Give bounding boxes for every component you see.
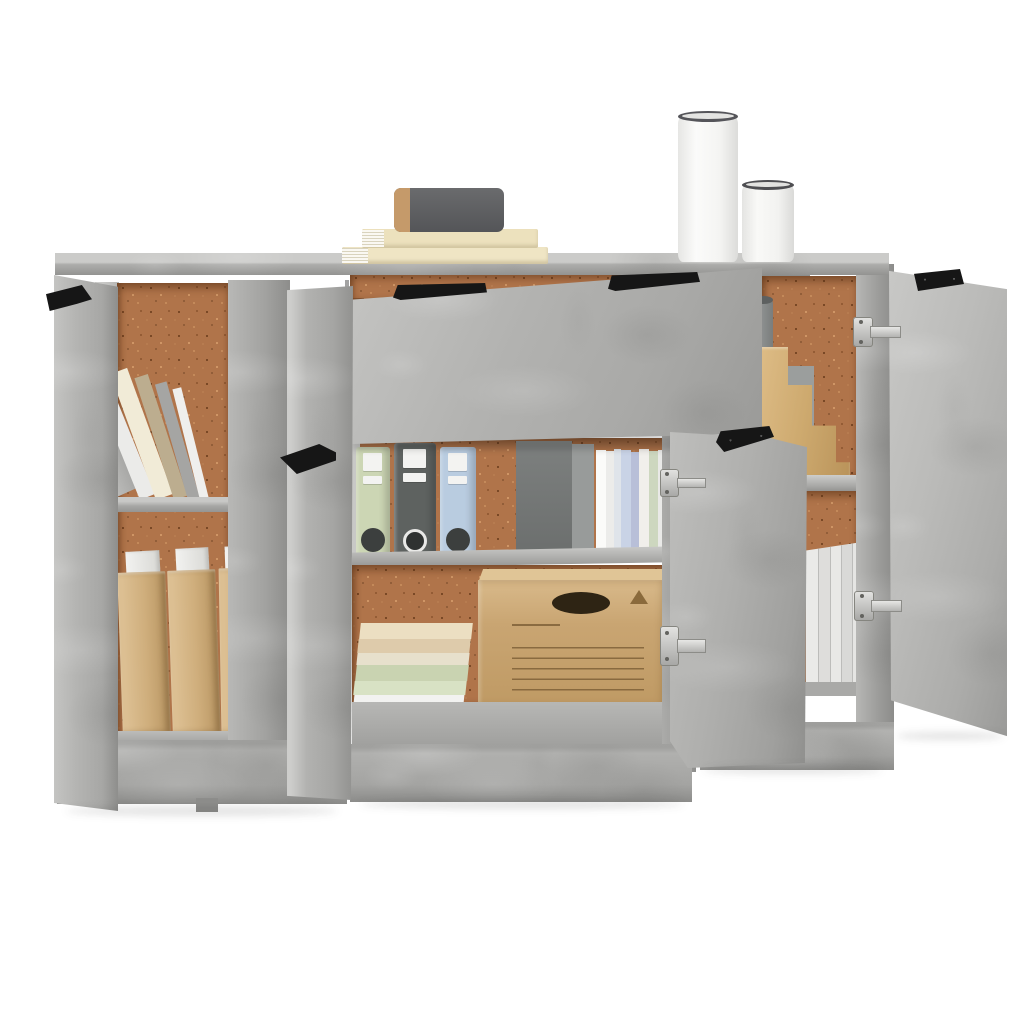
decor-book-bottom	[342, 247, 548, 264]
binder-label	[363, 476, 381, 484]
standing-book	[621, 450, 631, 558]
page-edges	[342, 248, 368, 263]
hinge-arm	[677, 639, 706, 654]
binder-ring-hole	[361, 528, 385, 552]
right-door-hinge-bottom	[854, 586, 902, 626]
book-spine-tan	[394, 188, 410, 232]
binder-label	[448, 476, 467, 484]
standing-book	[614, 449, 621, 558]
archive-box-grey-side	[572, 444, 594, 559]
decor-canister-tall	[678, 116, 738, 262]
pastel-book	[353, 681, 466, 695]
decor-canister-short	[742, 185, 794, 262]
standing-books	[596, 448, 670, 559]
standing-book	[596, 450, 606, 558]
pastel-book	[357, 639, 470, 653]
middle-right-door-hinge-bottom	[660, 620, 706, 672]
binder-blue	[440, 447, 476, 559]
cardboard-box	[478, 580, 668, 706]
page-edges	[362, 230, 384, 247]
white-file	[819, 542, 831, 684]
standing-book	[606, 451, 614, 558]
decor-book-top-dark	[394, 188, 504, 232]
floor-shadow-right	[702, 766, 882, 774]
binder-label	[403, 449, 426, 468]
middle-cabinet-floor	[352, 702, 690, 744]
white-file	[831, 542, 842, 684]
canister-rim-inner	[746, 182, 790, 187]
canister-short-rim	[742, 180, 794, 190]
binder-green	[356, 447, 390, 559]
box-handle-hole	[552, 592, 610, 614]
hinge-arm	[871, 600, 902, 611]
middle-right-door-hinge-top	[660, 464, 706, 502]
left-door	[54, 275, 118, 811]
pastel-book	[355, 665, 469, 681]
floor-shadow-middle	[360, 799, 684, 809]
binder-grey	[394, 443, 436, 560]
right-door	[889, 268, 1007, 738]
box-label-line-short	[512, 624, 560, 626]
magazine-file	[117, 571, 171, 733]
product-photo-stage	[0, 0, 1024, 1024]
right-door-hinge-top	[853, 312, 901, 352]
pastel-book	[359, 623, 473, 639]
left-cabinet-shelf	[106, 497, 230, 512]
standing-book	[639, 449, 649, 558]
binder-ring-hole	[446, 528, 470, 552]
canister-rim-inner	[682, 113, 734, 119]
floor-shadow-right-door	[896, 732, 1004, 740]
pastel-book	[356, 653, 469, 665]
magazine-file	[167, 569, 221, 733]
binder-label	[363, 453, 381, 471]
leaning-books	[108, 360, 218, 502]
middle-cabinet-base	[350, 744, 692, 802]
floor-shadow-left	[66, 806, 338, 816]
binder-ring-hole	[403, 529, 427, 553]
middle-left-door	[287, 286, 353, 800]
standing-book	[631, 452, 639, 558]
standing-book	[649, 451, 658, 558]
canister-tall-rim	[678, 111, 738, 122]
white-file	[806, 542, 819, 684]
left-middle-divider-panel	[228, 280, 290, 792]
white-file	[842, 542, 853, 684]
pastel-book-stack	[354, 623, 474, 713]
box-recycle-triangle-icon	[630, 590, 648, 604]
binder-label	[403, 473, 426, 481]
box-label-lines	[512, 638, 644, 692]
binder-label	[448, 453, 467, 471]
hinge-arm	[677, 478, 706, 489]
hinge-arm	[870, 326, 901, 337]
archive-box-grey	[516, 441, 572, 559]
